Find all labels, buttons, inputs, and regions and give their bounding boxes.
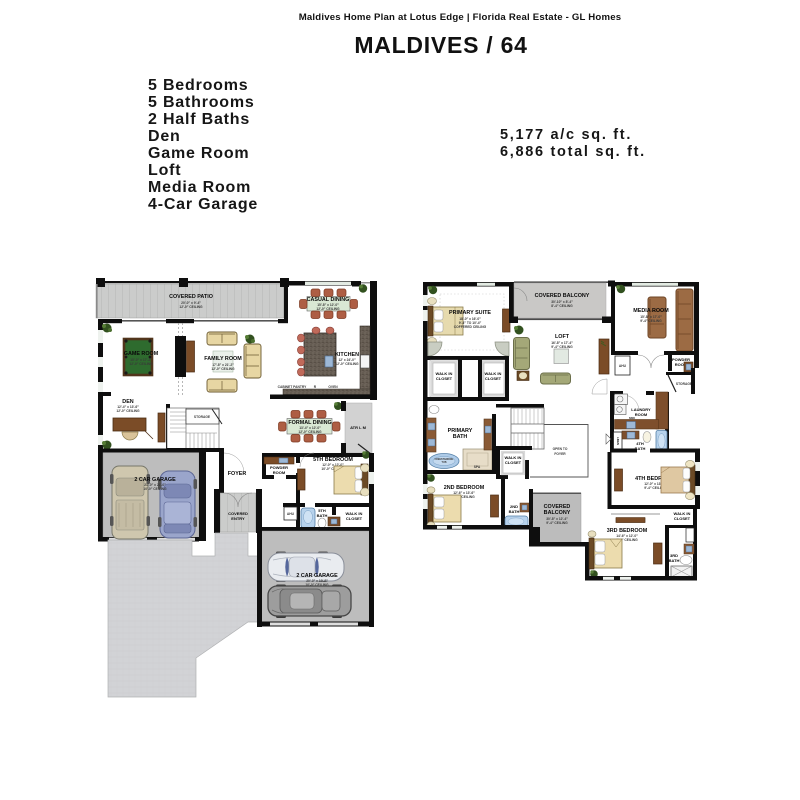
svg-text:CABINET PANTRY: CABINET PANTRY [278,385,308,389]
svg-text:MALDIVES / 64: MALDIVES / 64 [354,32,527,58]
svg-text:BALCONY: BALCONY [544,510,571,516]
svg-text:BATH: BATH [509,509,520,514]
svg-text:COVERED BALCONY: COVERED BALCONY [535,293,590,299]
svg-text:2 Half Baths: 2 Half Baths [148,111,250,128]
svg-text:ATR L M: ATR L M [350,425,367,430]
svg-text:9′-4″ CEILING: 9′-4″ CEILING [640,319,662,323]
svg-text:6,886 total sq. ft.: 6,886 total sq. ft. [500,144,646,160]
svg-text:5 Bedrooms: 5 Bedrooms [148,77,248,94]
svg-text:12′-0″ CEILING: 12′-0″ CEILING [179,305,203,309]
svg-text:BATH: BATH [669,558,680,563]
svg-text:12′-0″ CEILING: 12′-0″ CEILING [129,362,153,366]
svg-text:8′-4″ CEILING: 8′-4″ CEILING [551,304,573,308]
svg-text:PRIMARY SUITE: PRIMARY SUITE [449,310,491,316]
svg-text:CLOSET: CLOSET [674,516,691,521]
svg-text:ENTRY: ENTRY [231,516,245,521]
svg-text:9′-4″ CEILING: 9′-4″ CEILING [546,521,568,525]
svg-text:COVERED PATIO: COVERED PATIO [169,294,213,300]
svg-text:AHU: AHU [287,512,295,516]
svg-text:COFFERED CEILING: COFFERED CEILING [454,325,487,329]
svg-text:12′-0″ CEILING: 12′-0″ CEILING [211,367,235,371]
svg-text:12′-0″ CEILING: 12′-0″ CEILING [298,430,322,434]
svg-text:STORAGE: STORAGE [676,382,693,386]
svg-text:SINK: SINK [629,416,635,420]
svg-text:LOFT: LOFT [555,334,570,340]
svg-text:OPEN TO: OPEN TO [553,447,568,451]
svg-text:Den: Den [148,128,181,145]
svg-text:MEDIA ROOM: MEDIA ROOM [633,308,669,314]
svg-text:12′-0″ CEILING: 12′-0″ CEILING [335,362,359,366]
svg-text:10′-0″ CEILING: 10′-0″ CEILING [143,487,167,491]
svg-text:Loft: Loft [148,162,181,179]
svg-text:STORAGE: STORAGE [194,415,211,419]
svg-text:GAME ROOM: GAME ROOM [124,351,159,357]
svg-text:FOYER: FOYER [554,452,566,456]
svg-text:FOYER: FOYER [228,471,247,477]
svg-text:SPA: SPA [474,465,481,469]
svg-text:BATH: BATH [317,513,328,518]
svg-text:Media Room: Media Room [148,179,251,196]
svg-text:CLOSET: CLOSET [485,376,502,381]
svg-text:12′-0″ CEILING: 12′-0″ CEILING [316,307,340,311]
svg-text:Maldives Home Plan at Lotus Ed: Maldives Home Plan at Lotus Edge | Flori… [299,12,622,23]
svg-text:4-Car Garage: 4-Car Garage [148,196,258,213]
svg-text:ROOM: ROOM [273,470,286,475]
svg-text:Game Room: Game Room [148,145,249,162]
svg-text:ROOM: ROOM [635,412,648,417]
svg-text:FAMILY ROOM: FAMILY ROOM [204,356,242,362]
svg-text:5 Bathrooms: 5 Bathrooms [148,94,255,111]
svg-text:CLOSET: CLOSET [436,376,453,381]
svg-text:12′-0″ CEILING: 12′-0″ CEILING [116,409,140,413]
svg-text:AHU: AHU [619,364,627,368]
svg-text:LINEN: LINEN [616,437,620,445]
svg-text:5,177 a/c sq. ft.: 5,177 a/c sq. ft. [500,127,632,143]
svg-text:9′-4″ CEILING: 9′-4″ CEILING [551,345,573,349]
svg-text:TUB: TUB [442,461,447,464]
svg-text:OVEN: OVEN [328,385,338,389]
svg-text:BATH: BATH [453,434,468,440]
svg-text:CLOSET: CLOSET [505,460,522,465]
svg-text:CLOSET: CLOSET [346,516,363,521]
